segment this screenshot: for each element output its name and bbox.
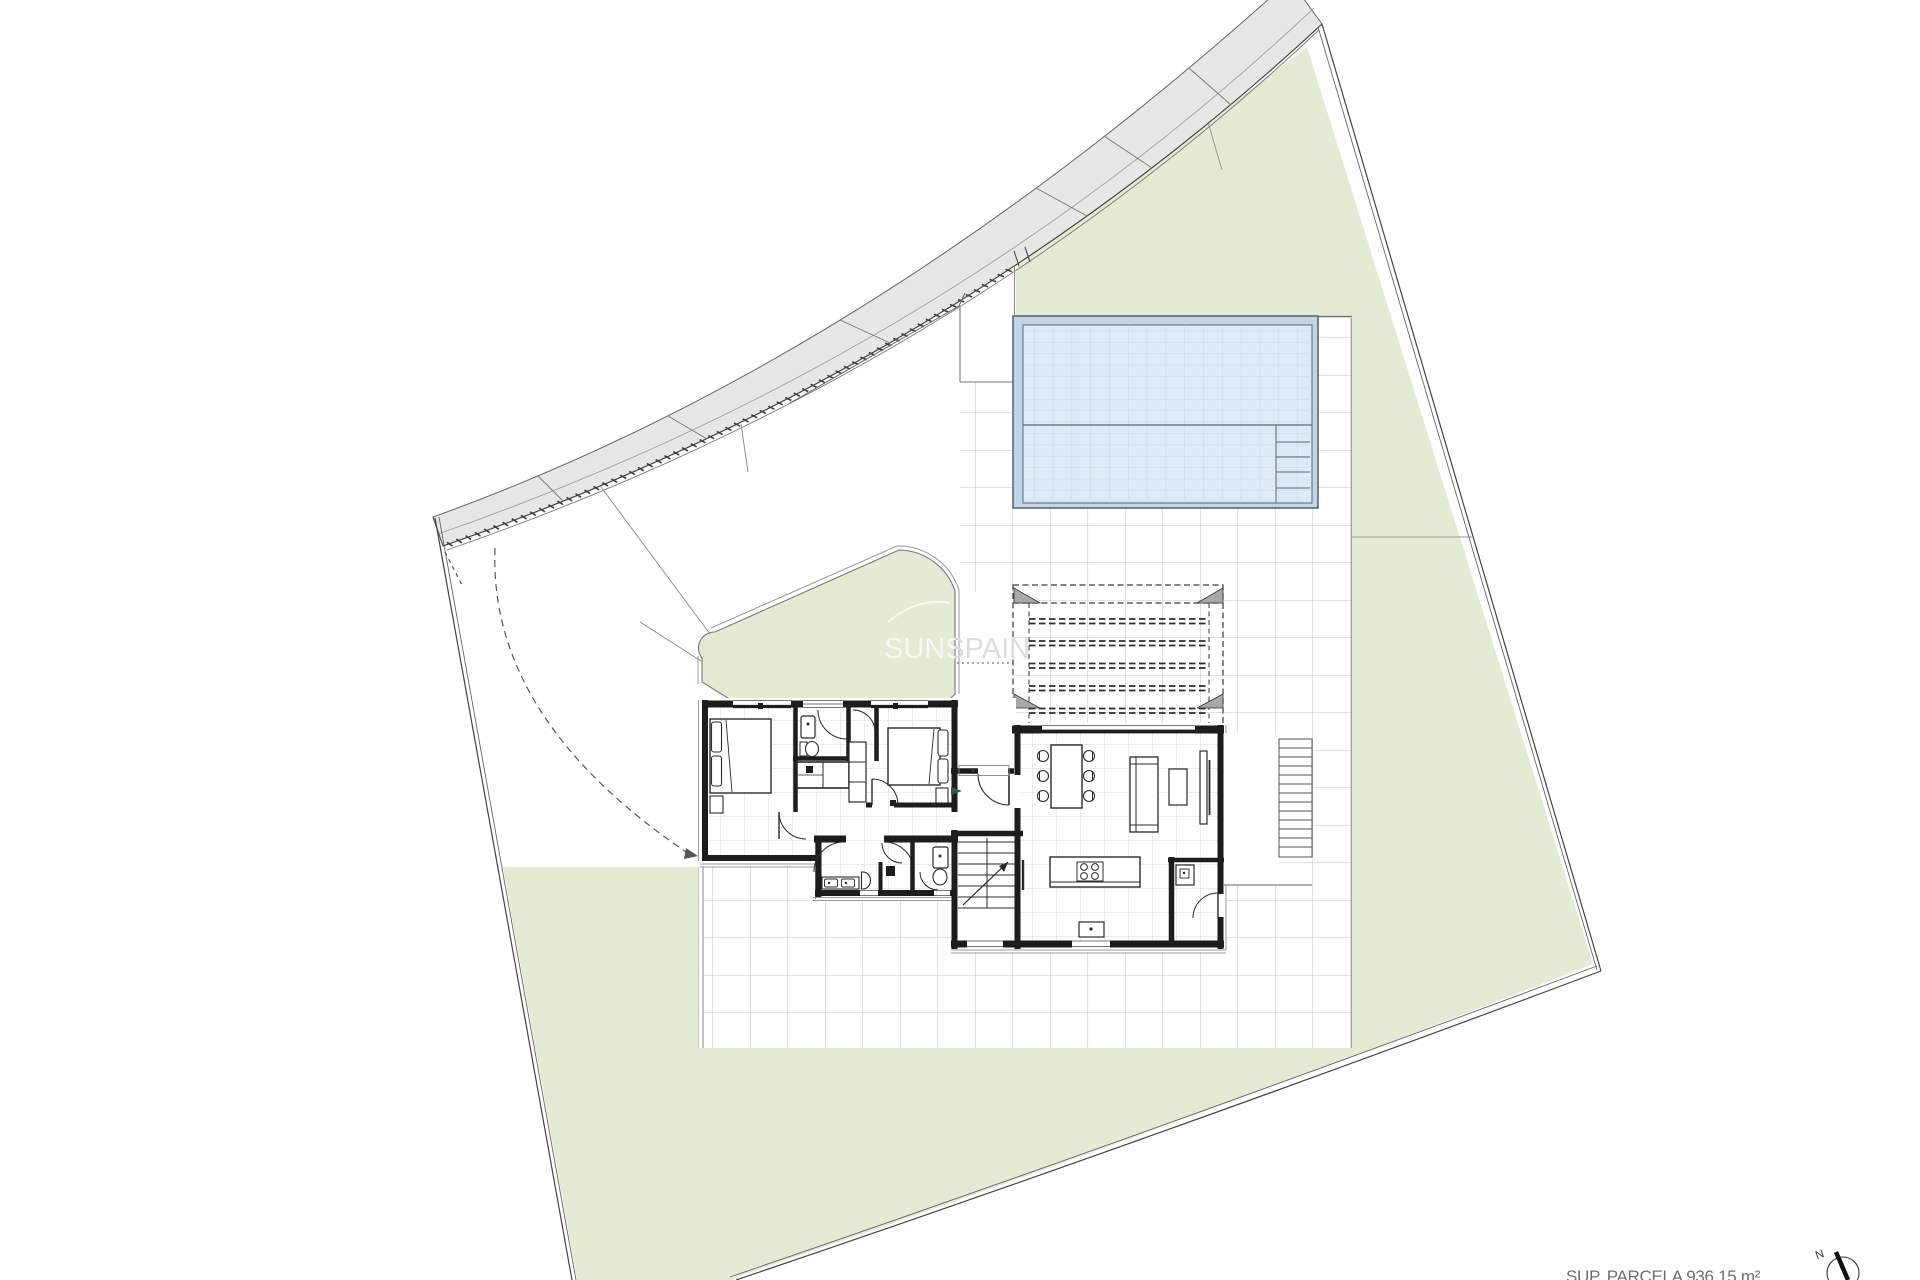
svg-text:SUP. PARCELA 936.15 m²: SUP. PARCELA 936.15 m² (1566, 1267, 1761, 1280)
